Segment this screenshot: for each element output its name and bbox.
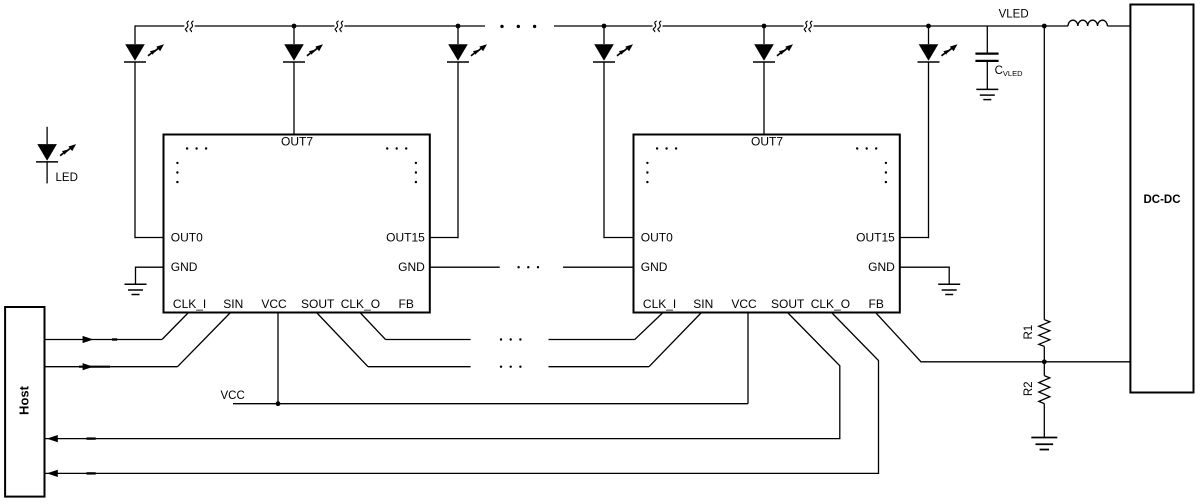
svg-text:GND: GND <box>641 260 668 274</box>
svg-text:LED: LED <box>56 172 78 184</box>
svg-text:OUT15: OUT15 <box>386 231 425 245</box>
svg-text:VCC: VCC <box>731 297 757 311</box>
svg-text:CLK_O: CLK_O <box>341 297 380 311</box>
svg-text:DC-DC: DC-DC <box>1143 194 1180 206</box>
svg-text:OUT15: OUT15 <box>856 231 895 245</box>
svg-text:GND: GND <box>398 260 425 274</box>
svg-text:OUT0: OUT0 <box>641 231 673 245</box>
svg-text:VCC: VCC <box>261 297 287 311</box>
svg-text:SOUT: SOUT <box>771 297 805 311</box>
svg-text:SOUT: SOUT <box>301 297 335 311</box>
svg-text:SIN: SIN <box>693 297 713 311</box>
svg-text:FB: FB <box>869 297 884 311</box>
svg-text:Host: Host <box>17 385 32 415</box>
svg-text:OUT0: OUT0 <box>171 231 203 245</box>
svg-text:VCC: VCC <box>221 390 245 402</box>
svg-text:R1: R1 <box>1023 325 1035 340</box>
svg-text:R2: R2 <box>1023 381 1035 396</box>
svg-text:GND: GND <box>868 260 895 274</box>
svg-text:SIN: SIN <box>223 297 243 311</box>
svg-text:CLK_I: CLK_I <box>643 297 676 311</box>
svg-text:CLK_O: CLK_O <box>811 297 850 311</box>
svg-text:CLK_I: CLK_I <box>173 297 206 311</box>
svg-text:CVLED: CVLED <box>995 65 1023 78</box>
svg-text:VLED: VLED <box>999 9 1029 21</box>
svg-text:FB: FB <box>399 297 414 311</box>
svg-text:GND: GND <box>171 260 198 274</box>
svg-text:OUT7: OUT7 <box>751 134 783 148</box>
svg-text:OUT7: OUT7 <box>281 134 313 148</box>
